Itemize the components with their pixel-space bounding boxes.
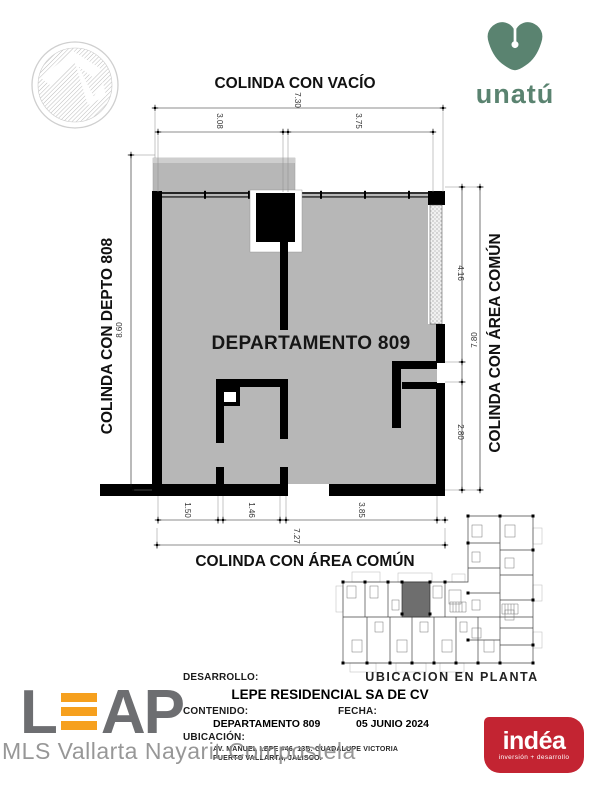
adjacency-right-label: COLINDA CON ÁREA COMÚN [486, 233, 504, 452]
floor-plan-drawing: 7.30 3.08 3.75 8.60 4.16 7.80 2.80 1.50 … [0, 0, 612, 792]
bottom-wall-right [329, 484, 445, 496]
leap-letter-p: P [144, 690, 183, 736]
leap-letter-a: A [101, 690, 144, 736]
dim-bottom-overall: 7.27 [292, 528, 301, 544]
dim-bottom-3: 3.85 [357, 502, 366, 518]
adjacency-bottom-label: COLINDA CON ÁREA COMÚN [195, 552, 414, 570]
service-shaft [250, 190, 302, 252]
adjacency-left-label: COLINDA CON DEPTO 808 [99, 237, 116, 434]
right-corner-post [428, 191, 445, 205]
unit-label: DEPARTAMENTO 809 [211, 333, 410, 354]
fecha-label: FECHA: [338, 706, 377, 717]
dim-left-overall: 8.60 [115, 322, 124, 338]
indea-tagline: inversión + desarrollo [499, 754, 570, 761]
leap-letter-l: L [20, 690, 56, 736]
desarrollo-value: LEPE RESIDENCIAL SA DE CV [185, 687, 475, 702]
miniplan-caption: UBICACION EN PLANTA [365, 670, 538, 684]
center-partition [280, 240, 288, 330]
dim-right-upper: 4.16 [456, 265, 465, 281]
indea-wordmark: indéa [503, 729, 566, 753]
left-wall [152, 191, 162, 490]
dim-bottom-2: 1.46 [247, 502, 256, 518]
dim-right-overall: 7.80 [470, 332, 479, 348]
right-window [430, 205, 442, 324]
dim-top-right: 3.75 [354, 113, 363, 129]
right-wall-upper [436, 324, 445, 363]
contenido-value: DEPARTAMENTO 809 [213, 718, 320, 730]
balcony-edge [153, 158, 295, 163]
dim-top-left: 3.08 [215, 113, 224, 129]
dim-right-lower: 2.80 [456, 424, 465, 440]
leap-letter-e-bars [56, 690, 101, 730]
location-miniplan: UBICACION EN PLANTA [336, 515, 542, 685]
contenido-label: CONTENIDO: [183, 706, 248, 717]
miniplan-highlighted-unit [402, 582, 430, 617]
desarrollo-label: DESARROLLO: [183, 672, 259, 683]
right-wall-lower [436, 383, 445, 486]
balcony-fill [153, 158, 295, 195]
dim-top-overall: 7.30 [293, 92, 302, 108]
indea-logo: indéa inversión + desarrollo [484, 717, 584, 773]
adjacency-top-label: COLINDA CON VACÍO [214, 75, 375, 92]
leap-logo: L A P [20, 690, 183, 736]
fecha-value: 05 JUNIO 2024 [356, 718, 429, 730]
mls-watermark: MLS Vallarta Nayarit Compostela [2, 738, 356, 765]
dim-bottom-1: 1.50 [183, 502, 192, 518]
